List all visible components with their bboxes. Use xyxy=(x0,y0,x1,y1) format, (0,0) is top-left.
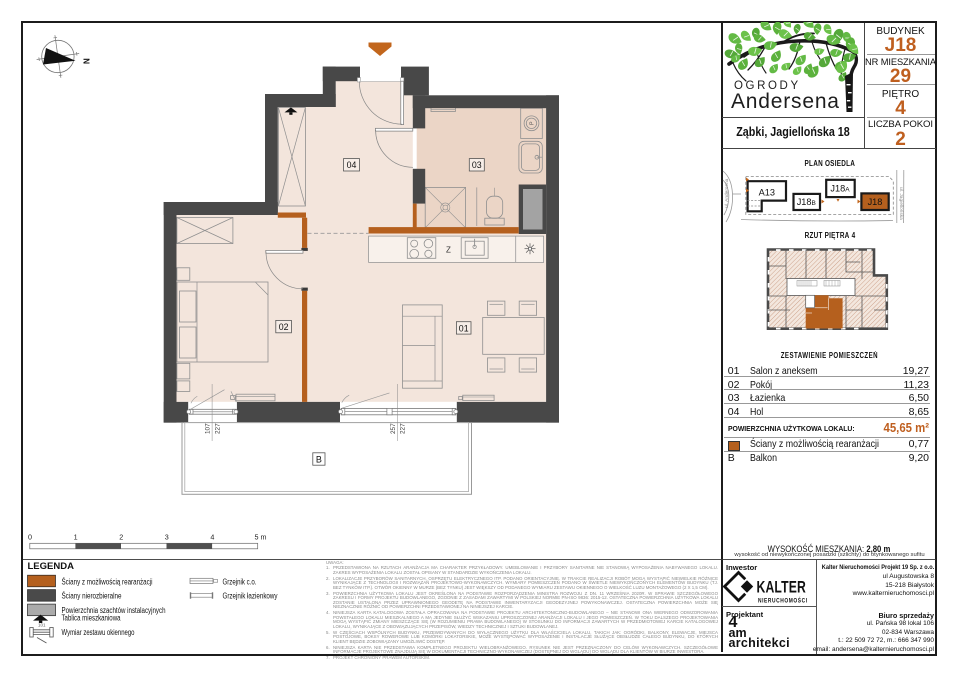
svg-text:227: 227 xyxy=(214,423,221,434)
svg-text:Wymiar zestawu okiennego: Wymiar zestawu okiennego xyxy=(62,628,135,637)
svg-text:Grzejnik c.o.: Grzejnik c.o. xyxy=(223,577,257,586)
svg-text:Ściany z możliwością rearanżac: Ściany z możliwością rearanżacji xyxy=(62,577,153,586)
svg-text:KALTER: KALTER xyxy=(757,579,807,597)
svg-text:N: N xyxy=(82,58,91,64)
svg-text:Tablica mieszkaniowa: Tablica mieszkaniowa xyxy=(62,614,121,623)
svg-text:1: 1 xyxy=(74,533,78,542)
svg-text:3: 3 xyxy=(165,533,169,542)
svg-text:107: 107 xyxy=(205,423,212,434)
svg-text:4: 4 xyxy=(210,533,214,542)
svg-text:A13: A13 xyxy=(759,188,775,198)
svg-text:01: 01 xyxy=(459,323,469,333)
svg-text:03: 03 xyxy=(472,160,482,170)
svg-text:227: 227 xyxy=(400,423,407,434)
svg-text:ul. Andersena: ul. Andersena xyxy=(724,178,730,208)
svg-text:2: 2 xyxy=(119,533,123,542)
svg-text:04: 04 xyxy=(347,160,357,170)
svg-text:B: B xyxy=(316,454,322,464)
svg-text:Z: Z xyxy=(446,245,451,254)
svg-text:5 m: 5 m xyxy=(255,533,267,542)
svg-text:LEGENDA: LEGENDA xyxy=(28,561,75,572)
svg-text:P: P xyxy=(530,121,536,125)
svg-text:ul. Jagiellońska: ul. Jagiellońska xyxy=(898,187,904,220)
svg-text:0: 0 xyxy=(28,533,32,542)
svg-text:257: 257 xyxy=(390,423,397,434)
svg-text:02: 02 xyxy=(279,322,289,332)
svg-text:J18: J18 xyxy=(868,197,883,207)
svg-text:101: 101 xyxy=(38,623,46,628)
svg-text:Grzejnik łazienkowy: Grzejnik łazienkowy xyxy=(223,592,278,601)
svg-text:Ściany nierozbieralne: Ściany nierozbieralne xyxy=(62,592,122,601)
